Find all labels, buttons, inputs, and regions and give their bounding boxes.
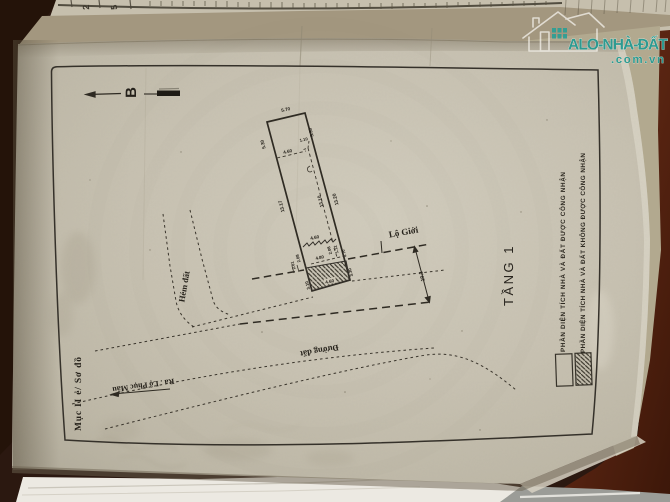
svg-text:Mục II ẻ/ Sơ đồ: Mục II ẻ/ Sơ đồ (74, 357, 84, 431)
svg-text:2: 2 (81, 4, 91, 10)
svg-text:PHẦN DIỆN TÍCH NHÀ VÀ ĐẤT ĐƯỢC: PHẦN DIỆN TÍCH NHÀ VÀ ĐẤT ĐƯỢC CÔNG NHẬN (559, 172, 567, 352)
svg-text:B: B (123, 87, 140, 98)
svg-text:TẦNG 1: TẦNG 1 (501, 244, 516, 306)
svg-text:.com.vn: .com.vn (611, 54, 665, 66)
svg-text:5: 5 (109, 4, 119, 10)
svg-text:ALO-NHÀ-ĐẤT: ALO-NHÀ-ĐẤT (568, 36, 668, 54)
svg-text:PHẦN DIỆN TÍCH NHÀ VÀ ĐẤT KHÔN: PHẦN DIỆN TÍCH NHÀ VÀ ĐẤT KHÔNG ĐƯỢC CÔN… (579, 153, 587, 353)
